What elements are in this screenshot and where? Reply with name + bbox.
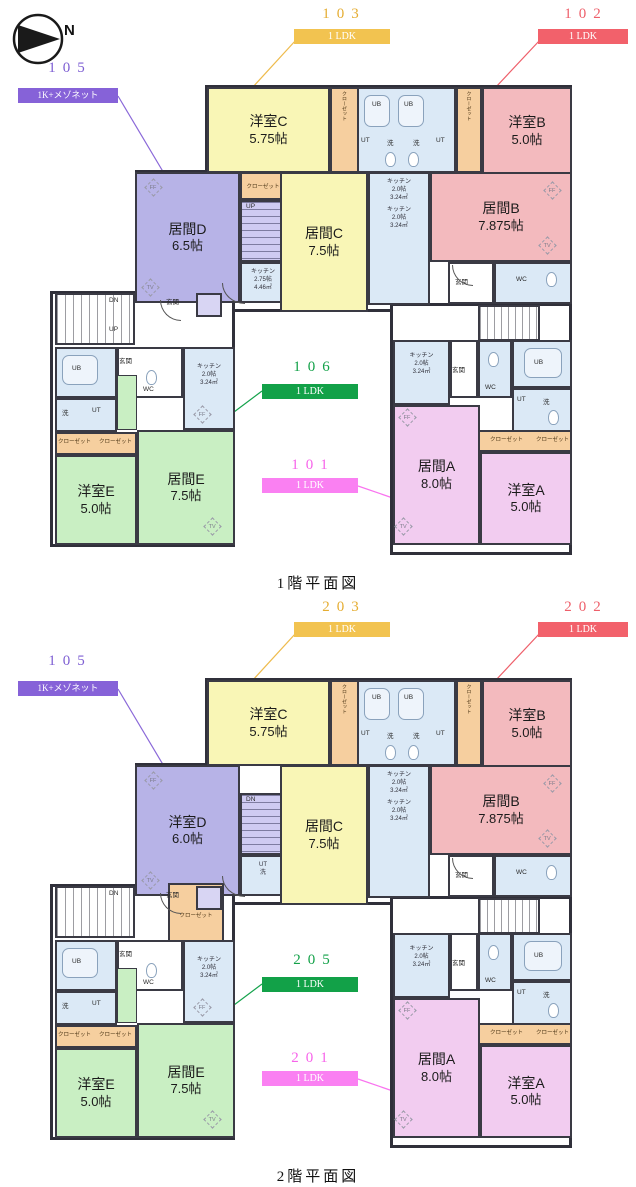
label-wash: 洗: [62, 407, 69, 417]
unit-number-top-right: 102: [542, 6, 630, 23]
kitchen-label: キッチン2.0帖3.24㎡: [370, 178, 428, 202]
stairs-left: [55, 886, 135, 938]
closet-label: クローゼット: [341, 684, 348, 714]
unit-type-top-left: 1 LDK: [294, 622, 390, 637]
floor-caption: 2階平面図: [0, 1165, 636, 1186]
unit-number-top-left: 103: [300, 6, 388, 23]
corridor-green: [117, 375, 137, 430]
room-e: 洋室E 5.0帖: [55, 1048, 137, 1138]
unit-number-bottom: 201: [269, 1050, 357, 1067]
label-ut: UT: [361, 730, 370, 737]
label-wash: 洗: [413, 730, 420, 740]
room-ee-name: 居間E: [167, 1063, 204, 1081]
room-d-name: 居間D: [168, 220, 206, 238]
kitchen-e-cell: キッチン2.0帖3.24㎡: [183, 940, 235, 1023]
wc-b: [494, 262, 572, 304]
stairs-right: [478, 305, 540, 341]
unit-number-mid: 205: [271, 952, 359, 969]
closet-label: クローゼット: [466, 91, 473, 121]
label-ub: UB: [372, 101, 381, 108]
label-ub: UB: [72, 365, 81, 372]
unit-type-mid: 1 LDK: [262, 977, 358, 992]
label-ub: UB: [404, 694, 413, 701]
room-a-size: 8.0帖: [421, 476, 452, 493]
label-genkan: 玄関: [452, 364, 465, 374]
toilet-icon: [146, 963, 157, 978]
room-aa-size: 5.0帖: [510, 1092, 541, 1109]
toilet-icon: [488, 945, 499, 960]
label-wc: WC: [143, 386, 154, 393]
label-ub: UB: [72, 958, 81, 965]
unit-type-bottom: 1 LDK: [262, 1071, 358, 1086]
closet-label: クローゼット: [99, 437, 132, 445]
kitchen-block-mid: キッチン2.0帖3.24㎡ キッチン2.0帖3.24㎡: [368, 765, 430, 898]
closet-strip-c: クローゼット: [330, 87, 359, 173]
room-d-name: 洋室D: [168, 813, 206, 831]
floor-plan-second: 105 1K+メゾネット 203 1 LDK 202 1 LDK 205 1 L…: [0, 593, 636, 1186]
kitchen-a-cell: キッチン2.0帖3.24㎡: [393, 340, 450, 405]
room-e: 洋室E 5.0帖: [55, 455, 137, 545]
room-a-name: 居間A: [418, 457, 455, 475]
kitchen-label: キッチン2.0帖3.24㎡: [185, 956, 233, 980]
unit-type-top-right: 1 LDK: [538, 622, 628, 637]
stairs-right: [478, 898, 540, 934]
bathtub-icon: [364, 95, 390, 127]
label-wc: WC: [485, 977, 496, 984]
unit-number-bottom: 101: [269, 457, 357, 474]
room-b-name: 洋室B: [508, 706, 545, 724]
room-d-size: 6.0帖: [172, 831, 203, 848]
room-b: 洋室B 5.0帖: [482, 87, 572, 175]
unit-number-left: 105: [20, 653, 120, 670]
unit-type-bottom: 1 LDK: [262, 478, 358, 493]
toilet-icon: [546, 272, 557, 287]
leader-unit-left: [118, 689, 168, 773]
label-ut: UT: [92, 1000, 101, 1007]
kitchen-d-label: UT洗: [242, 861, 284, 877]
hall-cell: [196, 886, 222, 910]
label-ub: UB: [404, 101, 413, 108]
room-bb-size: 7.875帖: [478, 811, 524, 828]
room-e-name: 洋室E: [77, 482, 114, 500]
room-c: 洋室C 5.75帖: [207, 680, 330, 766]
toilet-icon: [385, 745, 396, 760]
toilet-icon: [548, 1003, 559, 1018]
toilet-icon: [488, 352, 499, 367]
room-c-name: 洋室C: [249, 705, 287, 723]
toilet-icon: [146, 370, 157, 385]
label-wc: WC: [143, 979, 154, 986]
toilet-icon: [408, 745, 419, 760]
label-ut: UT: [517, 396, 526, 403]
closet-label: クローゼット: [58, 1030, 91, 1038]
closet-label: クローゼット: [99, 1030, 132, 1038]
label-wc: WC: [485, 384, 496, 391]
room-a-size: 8.0帖: [421, 1069, 452, 1086]
label-wash: 洗: [387, 137, 394, 147]
closet-label: クローゼット: [490, 435, 523, 443]
closet-label: クローゼット: [466, 684, 473, 714]
label-ut: UT: [361, 137, 370, 144]
room-ee-name: 居間E: [167, 470, 204, 488]
room-cc: 居間C 7.5帖: [280, 765, 368, 905]
washroom-a: [512, 981, 572, 1025]
label-genkan: 玄関: [119, 948, 132, 958]
floor-plan-page: N 105 1K+メゾネット 103 1 LDK 102 1 LDK 106 1…: [0, 0, 636, 1187]
room-ee-size: 7.5帖: [170, 1081, 201, 1098]
room-c-name: 洋室C: [249, 112, 287, 130]
room-bb-name: 居間B: [482, 792, 519, 810]
stairs-left: [55, 293, 135, 345]
label-ut: UT: [436, 730, 445, 737]
closet-label: クローゼット: [536, 435, 569, 443]
kitchen-a-cell: キッチン2.0帖3.24㎡: [393, 933, 450, 998]
kitchen-e-cell: キッチン2.0帖3.24㎡: [183, 347, 235, 430]
label-ub: UB: [534, 952, 543, 959]
closet-label: クローゼット: [58, 437, 91, 445]
bathtub-icon: [364, 688, 390, 720]
corridor-green: [117, 968, 137, 1023]
label-wc: WC: [516, 276, 527, 283]
room-c: 洋室C 5.75帖: [207, 87, 330, 173]
room-e-name: 洋室E: [77, 1075, 114, 1093]
label-ub: UB: [534, 359, 543, 366]
kitchen-label: キッチン2.0帖3.24㎡: [370, 799, 428, 823]
unit-number-left: 105: [20, 60, 120, 77]
toilet-icon: [385, 152, 396, 167]
stairs-left-top-label: DN: [109, 890, 118, 897]
room-cc-size: 7.5帖: [308, 243, 339, 260]
stairs-mid-label: DN: [246, 796, 255, 803]
leader-unit-top-left: [252, 40, 296, 88]
label-wc: WC: [516, 869, 527, 876]
label-wash: 洗: [543, 989, 550, 999]
unit-number-top-right: 202: [542, 599, 630, 616]
kitchen-label: キッチン2.0帖3.24㎡: [395, 945, 448, 969]
toilet-icon: [546, 865, 557, 880]
label-ut: UT: [92, 407, 101, 414]
unit-type-top-right: 1 LDK: [538, 29, 628, 44]
closet-label: クローゼット: [490, 1028, 523, 1036]
closet-label: クローゼット: [341, 91, 348, 121]
kitchen-d-label: キッチン2.75帖4.46㎡: [242, 268, 284, 292]
label-wash: 洗: [387, 730, 394, 740]
stairs-left-top-label: DN: [109, 297, 118, 304]
room-c-size: 5.75帖: [249, 724, 287, 741]
toilet-icon: [408, 152, 419, 167]
floor-caption: 1階平面図: [0, 572, 636, 593]
label-wash: 洗: [413, 137, 420, 147]
room-bb-size: 7.875帖: [478, 218, 524, 235]
room-aa: 洋室A 5.0帖: [480, 452, 572, 545]
label-genkan: 玄関: [452, 957, 465, 967]
unit-type-top-left: 1 LDK: [294, 29, 390, 44]
room-cc-name: 居間C: [305, 224, 343, 242]
bathtub-icon: [398, 688, 424, 720]
room-b-name: 洋室B: [508, 113, 545, 131]
room-cc-name: 居間C: [305, 817, 343, 835]
leader-unit-left: [118, 96, 168, 180]
room-aa: 洋室A 5.0帖: [480, 1045, 572, 1138]
kitchen-block-mid: キッチン2.0帖3.24㎡ キッチン2.0帖3.24㎡: [368, 172, 430, 305]
kitchen-label: キッチン2.0帖3.24㎡: [370, 206, 428, 230]
closet-strip-b: クローゼット: [456, 87, 482, 173]
unit-number-top-left: 203: [300, 599, 388, 616]
room-e-size: 5.0帖: [80, 501, 111, 518]
room-aa-name: 洋室A: [507, 1074, 544, 1092]
label-wash: 洗: [543, 396, 550, 406]
stairs-left-bottom-label: UP: [109, 326, 118, 333]
leader-unit-top-left: [252, 633, 296, 681]
room-aa-size: 5.0帖: [510, 499, 541, 516]
label-ut: UT: [517, 989, 526, 996]
floor-plan-first: 105 1K+メゾネット 103 1 LDK 102 1 LDK 106 1 L…: [0, 0, 636, 593]
label-wash: 洗: [62, 1000, 69, 1010]
unit-type-left: 1K+メゾネット: [18, 88, 118, 103]
kitchen-label: キッチン2.0帖3.24㎡: [370, 771, 428, 795]
label-ut: UT: [436, 137, 445, 144]
kitchen-label: キッチン2.0帖3.24㎡: [395, 352, 448, 376]
room-b-size: 5.0帖: [511, 132, 542, 149]
wc-b: [494, 855, 572, 897]
room-b-size: 5.0帖: [511, 725, 542, 742]
unit-number-mid: 106: [271, 359, 359, 376]
stairs-mid-label: UP: [246, 203, 255, 210]
unit-type-mid: 1 LDK: [262, 384, 358, 399]
room-a-name: 居間A: [418, 1050, 455, 1068]
room-aa-name: 洋室A: [507, 481, 544, 499]
toilet-icon: [548, 410, 559, 425]
bathtub-icon: [398, 95, 424, 127]
kitchen-label: キッチン2.0帖3.24㎡: [185, 363, 233, 387]
room-c-size: 5.75帖: [249, 131, 287, 148]
washroom-a: [512, 388, 572, 432]
room-cc-size: 7.5帖: [308, 836, 339, 853]
room-ee-size: 7.5帖: [170, 488, 201, 505]
room-b: 洋室B 5.0帖: [482, 680, 572, 768]
label-ub: UB: [372, 694, 381, 701]
room-e-size: 5.0帖: [80, 1094, 111, 1111]
closet-label: クローゼット: [536, 1028, 569, 1036]
closet-strip-b: クローゼット: [456, 680, 482, 766]
unit-type-left: 1K+メゾネット: [18, 681, 118, 696]
hall-cell: [196, 293, 222, 317]
closet-strip-c: クローゼット: [330, 680, 359, 766]
floors-container: 105 1K+メゾネット 103 1 LDK 102 1 LDK 106 1 L…: [0, 0, 636, 1186]
label-genkan: 玄関: [119, 355, 132, 365]
room-bb-name: 居間B: [482, 199, 519, 217]
room-d-size: 6.5帖: [172, 238, 203, 255]
room-cc: 居間C 7.5帖: [280, 172, 368, 312]
